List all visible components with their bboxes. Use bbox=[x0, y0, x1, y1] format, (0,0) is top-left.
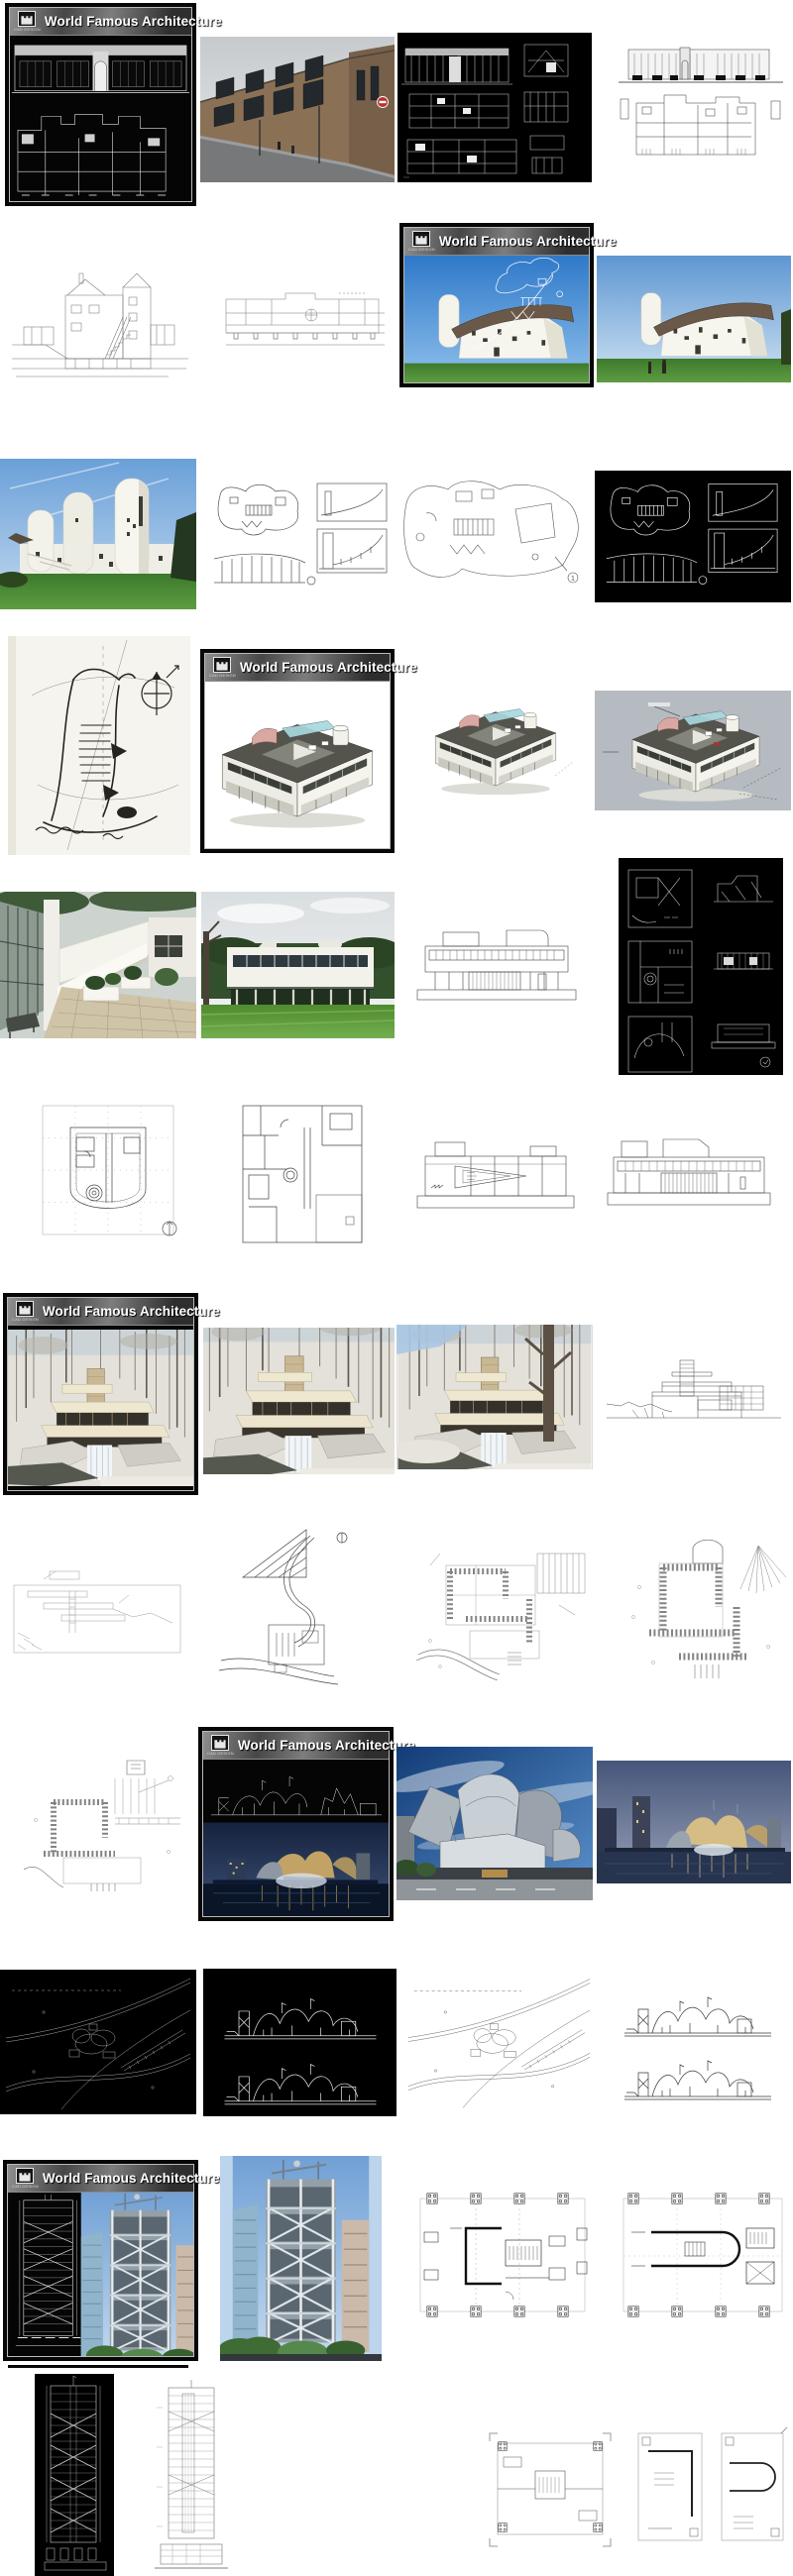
villa-savoye-photo[interactable] bbox=[201, 892, 395, 1038]
glasgow-elevation-plan-drawing[interactable] bbox=[613, 40, 788, 170]
glasgow-floor-plan-drawing[interactable] bbox=[220, 285, 391, 359]
villa-savoye-cover[interactable]: CAD DESIGN World Famous Architecture bbox=[200, 649, 395, 853]
fallingwater-winter-photo-2[interactable] bbox=[396, 1325, 593, 1469]
guggenheim-cad-site-plan[interactable] bbox=[0, 1970, 196, 2114]
villa-savoye-first-plan[interactable] bbox=[235, 1100, 370, 1248]
guggenheim-elevation-drawings[interactable] bbox=[605, 1972, 790, 2111]
guggenheim-cad-elevations[interactable] bbox=[203, 1969, 396, 2116]
fallingwater-section-drawing[interactable] bbox=[10, 1556, 184, 1658]
brand-header: CAD DESIGN World Famous Architecture bbox=[404, 228, 589, 256]
ronchamp-cover-photo bbox=[404, 256, 589, 382]
fallingwater-plan-drawing[interactable] bbox=[410, 1536, 592, 1680]
hsbc-cover-body bbox=[8, 2193, 193, 2356]
brand-header: CAD DESIGN World Famous Architecture bbox=[10, 8, 191, 36]
brand-logo-text: CAD DESIGN bbox=[207, 1752, 234, 1756]
villa-savoye-section-drawing[interactable] bbox=[411, 1130, 580, 1222]
ronchamp-cover[interactable]: CAD DESIGN World Famous Architecture bbox=[399, 223, 594, 387]
glasgow-section-drawing[interactable] bbox=[10, 266, 190, 384]
fallingwater-cover-photo bbox=[8, 1326, 193, 1490]
walt-disney-concert-hall-photo[interactable] bbox=[396, 1747, 593, 1900]
brand-logo-icon bbox=[18, 11, 36, 27]
hsbc-plan-drawing-4[interactable] bbox=[634, 2425, 790, 2554]
figure-number: 1 bbox=[571, 576, 575, 583]
guggenheim-cover-body bbox=[203, 1760, 389, 1916]
villa-savoye-facade-drawing[interactable] bbox=[600, 1129, 778, 1220]
fallingwater-elevation-drawing[interactable] bbox=[603, 1354, 785, 1430]
brand-header: CAD DESIGN World Famous Architecture bbox=[8, 1298, 193, 1326]
brand-logo-icon bbox=[412, 231, 430, 247]
glasgow-street-photo[interactable] bbox=[200, 37, 395, 182]
brand-logo-icon bbox=[213, 657, 231, 673]
brand-header: CAD DESIGN World Famous Architecture bbox=[203, 1732, 389, 1760]
villa-savoye-ground-plan[interactable] bbox=[33, 1098, 183, 1245]
brand-title: World Famous Architecture bbox=[45, 14, 222, 29]
brand-title: World Famous Architecture bbox=[238, 1738, 415, 1753]
ronchamp-cad-sheet[interactable] bbox=[595, 471, 791, 602]
hsbc-tower-photo[interactable] bbox=[220, 2156, 382, 2361]
guggenheim-night-photo[interactable] bbox=[597, 1761, 791, 1883]
brand-logo-text: CAD DESIGN bbox=[12, 2185, 39, 2189]
brand-logo-text: CAD DESIGN bbox=[408, 248, 435, 252]
hsbc-plan-drawing[interactable] bbox=[410, 2185, 595, 2326]
fallingwater-plan-drawing-2[interactable] bbox=[610, 1538, 790, 1682]
villa-savoye-elevation-drawing[interactable] bbox=[411, 916, 582, 1007]
fallingwater-winter-photo[interactable] bbox=[203, 1328, 395, 1474]
brand-logo-icon bbox=[16, 1301, 34, 1317]
hsbc-cad-tower-elevation[interactable] bbox=[35, 2374, 114, 2576]
brand-header: CAD DESIGN World Famous Architecture bbox=[8, 2165, 193, 2193]
brand-logo-text: CAD DESIGN bbox=[209, 674, 236, 678]
villa-savoye-terrace-photo[interactable] bbox=[0, 892, 196, 1038]
brand-title: World Famous Architecture bbox=[240, 660, 417, 675]
hsbc-plan-drawing-2[interactable] bbox=[616, 2185, 791, 2326]
divider-line bbox=[8, 2365, 188, 2368]
hsbc-cover[interactable]: CAD DESIGN World Famous Architecture bbox=[3, 2160, 198, 2361]
brand-title: World Famous Architecture bbox=[43, 1304, 220, 1319]
ronchamp-site-plan-drawing[interactable]: 1 bbox=[396, 474, 587, 593]
brand-logo-text: CAD DESIGN bbox=[14, 28, 41, 32]
ronchamp-rear-photo[interactable] bbox=[0, 459, 196, 609]
brand-title: World Famous Architecture bbox=[43, 2171, 220, 2186]
glasgow-cad-cover[interactable]: CAD DESIGN World Famous Architecture bbox=[5, 3, 196, 206]
fallingwater-plan-drawing-3[interactable] bbox=[20, 1759, 186, 1895]
hsbc-tower-elevation-drawing[interactable] bbox=[149, 2378, 233, 2576]
fallingwater-site-sketch[interactable] bbox=[215, 1526, 380, 1691]
brand-title: World Famous Architecture bbox=[439, 234, 617, 249]
ronchamp-sketch-sheet[interactable] bbox=[206, 476, 396, 597]
ronchamp-photo[interactable] bbox=[597, 256, 791, 382]
hsbc-plan-drawing-3[interactable] bbox=[484, 2427, 617, 2552]
villa-savoye-cad-sheet[interactable] bbox=[619, 858, 783, 1075]
villa-savoye-model-grey[interactable] bbox=[595, 691, 791, 810]
glasgow-cad-body bbox=[10, 36, 191, 201]
brand-logo-icon bbox=[16, 2168, 34, 2184]
villa-savoye-model-white[interactable] bbox=[416, 691, 578, 805]
ronchamp-pencil-sketch[interactable] bbox=[8, 636, 190, 855]
gallery-page: CAD DESIGN World Famous Architecture bbox=[0, 0, 793, 2576]
villa-savoye-cover-model bbox=[205, 682, 390, 848]
guggenheim-cover[interactable]: CAD DESIGN World Famous Architecture bbox=[198, 1727, 394, 1921]
guggenheim-site-plan-drawing[interactable] bbox=[406, 1972, 592, 2111]
brand-header: CAD DESIGN World Famous Architecture bbox=[205, 654, 390, 682]
glasgow-cad-sheet[interactable] bbox=[397, 33, 592, 182]
brand-logo-icon bbox=[211, 1735, 229, 1751]
fallingwater-cover[interactable]: CAD DESIGN World Famous Architecture bbox=[3, 1293, 198, 1495]
brand-logo-text: CAD DESIGN bbox=[12, 1318, 39, 1322]
